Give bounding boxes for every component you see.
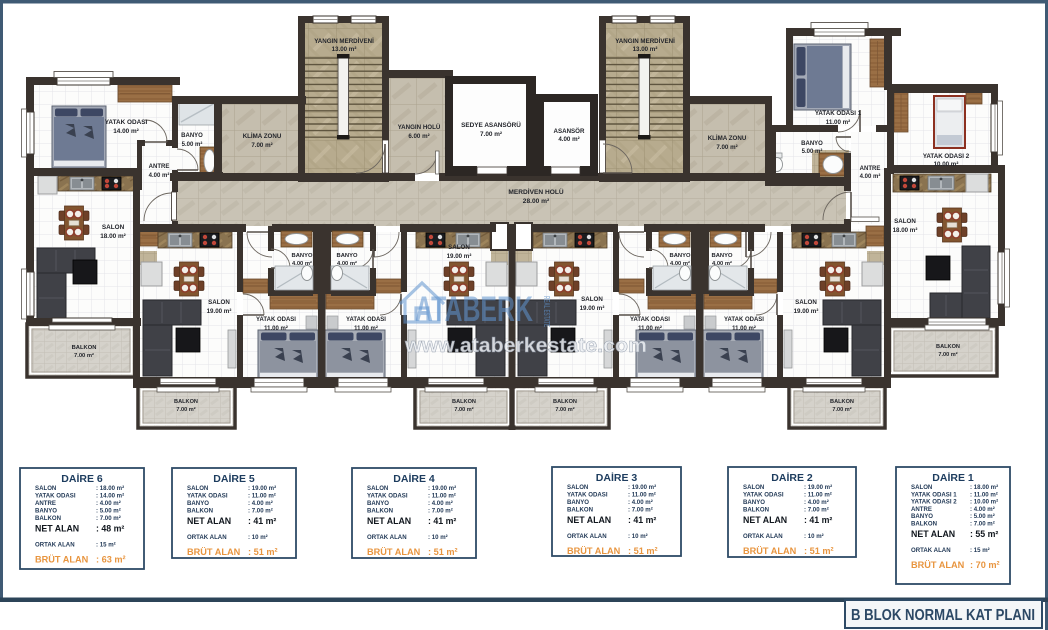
svg-text:: 5.00 m²: : 5.00 m²	[970, 513, 995, 520]
svg-text:BALKON: BALKON	[187, 508, 213, 515]
svg-text:: 7.00 m²: : 7.00 m²	[628, 507, 653, 514]
svg-text:BANYO: BANYO	[911, 513, 933, 520]
svg-text:SALON: SALON	[367, 485, 388, 492]
svg-text:7.00 m²: 7.00 m²	[454, 406, 473, 413]
svg-text:: 41 m²: : 41 m²	[804, 515, 832, 525]
svg-text:: 41 m²: : 41 m²	[248, 516, 276, 526]
svg-text:: 4.00 m²: : 4.00 m²	[804, 499, 829, 506]
svg-text:YATAK ODASI: YATAK ODASI	[567, 492, 608, 499]
svg-text:BANYO: BANYO	[367, 500, 389, 507]
svg-text:BALKON: BALKON	[452, 399, 476, 405]
svg-text:DAİRE 3: DAİRE 3	[596, 471, 638, 484]
svg-text:BANYO: BANYO	[743, 499, 765, 506]
svg-text:BALKON: BALKON	[72, 345, 97, 351]
svg-text:NET ALAN: NET ALAN	[743, 515, 787, 525]
svg-text:SALON: SALON	[567, 484, 588, 491]
svg-text:BRÜT ALAN: BRÜT ALAN	[367, 547, 421, 557]
svg-text:: 4.00 m²: : 4.00 m²	[96, 500, 121, 507]
svg-text:: 7.00 m²: : 7.00 m²	[970, 521, 995, 528]
svg-text:YATAK ODASI: YATAK ODASI	[724, 317, 764, 323]
svg-text:YATAK ODASI: YATAK ODASI	[367, 493, 408, 500]
svg-text:SALON: SALON	[208, 299, 230, 306]
svg-text:BALKON: BALKON	[35, 515, 61, 522]
svg-text:BALKON: BALKON	[553, 399, 577, 405]
svg-text:SALON: SALON	[35, 485, 56, 492]
svg-text:13.00 m²: 13.00 m²	[332, 46, 357, 53]
svg-text:ORTAK ALAN: ORTAK ALAN	[743, 533, 783, 540]
svg-text:BRÜT ALAN: BRÜT ALAN	[567, 546, 621, 556]
svg-text:SALON: SALON	[894, 218, 916, 225]
svg-text:11.00 m²: 11.00 m²	[638, 325, 662, 332]
svg-text:B BLOK NORMAL KAT PLANI: B BLOK NORMAL KAT PLANI	[851, 607, 1035, 624]
svg-text:YATAK ODASI 2: YATAK ODASI 2	[911, 499, 957, 506]
svg-text:: 19.00 m²: : 19.00 m²	[804, 484, 832, 491]
svg-text:BANYO: BANYO	[181, 133, 203, 139]
svg-text:YATAK ODASI: YATAK ODASI	[256, 317, 296, 323]
svg-text:: 4.00 m²: : 4.00 m²	[628, 499, 653, 506]
svg-text:BALKON: BALKON	[936, 344, 960, 350]
svg-text:: 11.00 m²: : 11.00 m²	[804, 492, 832, 499]
svg-text:: 63 m²: : 63 m²	[96, 555, 126, 565]
svg-text:BALKON: BALKON	[367, 508, 393, 515]
svg-text:BALKON: BALKON	[911, 521, 937, 528]
svg-text:18.00 m²: 18.00 m²	[893, 227, 918, 234]
svg-text:: 15 m²: : 15 m²	[96, 542, 116, 549]
svg-text:19.00 m²: 19.00 m²	[447, 253, 472, 260]
svg-text:: 4.00 m²: : 4.00 m²	[248, 500, 273, 507]
svg-text:: 51 m²: : 51 m²	[428, 547, 458, 557]
svg-text:: 14.00 m²: : 14.00 m²	[96, 493, 124, 500]
svg-text:: 11.00 m²: : 11.00 m²	[428, 493, 456, 500]
svg-text:13.00 m²: 13.00 m²	[633, 46, 658, 53]
svg-text:: 19.00 m²: : 19.00 m²	[248, 485, 276, 492]
svg-text:19.00 m²: 19.00 m²	[207, 308, 232, 315]
svg-text:BRÜT ALAN: BRÜT ALAN	[35, 555, 89, 565]
svg-text:ORTAK ALAN: ORTAK ALAN	[187, 534, 227, 541]
svg-text:KLİMA ZONU: KLİMA ZONU	[708, 135, 747, 142]
svg-text:: 7.00 m²: : 7.00 m²	[248, 508, 273, 515]
svg-text:NET ALAN: NET ALAN	[567, 515, 611, 525]
svg-text:: 48 m²: : 48 m²	[96, 524, 124, 534]
svg-text:: 7.00 m²: : 7.00 m²	[804, 507, 829, 514]
svg-text:SALON: SALON	[795, 299, 817, 306]
svg-text:: 51 m²: : 51 m²	[248, 547, 278, 557]
svg-text:BANYO: BANYO	[35, 508, 57, 515]
svg-text:BANYO: BANYO	[292, 253, 313, 259]
svg-text:10.00 m²: 10.00 m²	[934, 161, 959, 168]
svg-text:4.00 m²: 4.00 m²	[558, 136, 579, 143]
svg-text:YATAK ODASI: YATAK ODASI	[105, 119, 148, 126]
svg-text:YANGIN HOLÜ: YANGIN HOLÜ	[398, 124, 441, 131]
svg-text:YATAK ODASI: YATAK ODASI	[187, 493, 228, 500]
svg-text:11.00 m²: 11.00 m²	[732, 325, 756, 332]
svg-text:11.00 m²: 11.00 m²	[826, 119, 850, 126]
svg-text:BANYO: BANYO	[670, 253, 691, 259]
svg-text:: 10 m²: : 10 m²	[248, 534, 268, 541]
svg-text:NET ALAN: NET ALAN	[367, 516, 411, 526]
svg-text:ATABERK: ATABERK	[415, 290, 533, 329]
svg-text:DAİRE 1: DAİRE 1	[932, 471, 974, 484]
svg-text:: 18.00 m²: : 18.00 m²	[970, 484, 998, 491]
svg-text:4.00 m²: 4.00 m²	[149, 172, 170, 179]
svg-text:: 18.00 m²: : 18.00 m²	[96, 485, 124, 492]
svg-text:: 10 m²: : 10 m²	[628, 533, 648, 540]
svg-text:DAİRE 6: DAİRE 6	[61, 472, 103, 485]
svg-text:YATAK ODASI 1: YATAK ODASI 1	[911, 491, 957, 498]
svg-text:: 4.00 m²: : 4.00 m²	[428, 500, 453, 507]
svg-text:: 11.00 m²: : 11.00 m²	[970, 491, 998, 498]
svg-text:: 10 m²: : 10 m²	[428, 534, 448, 541]
svg-text:NET ALAN: NET ALAN	[911, 529, 955, 539]
svg-text:BALKON: BALKON	[174, 399, 198, 405]
svg-text:7.00 m²: 7.00 m²	[251, 142, 272, 149]
svg-text:ORTAK ALAN: ORTAK ALAN	[367, 534, 407, 541]
svg-text:: 51 m²: : 51 m²	[804, 546, 834, 556]
svg-text:SALON: SALON	[581, 296, 603, 303]
svg-text:ANTRE: ANTRE	[860, 166, 881, 172]
svg-text:7.00 m²: 7.00 m²	[832, 406, 851, 413]
svg-text:NET ALAN: NET ALAN	[187, 516, 231, 526]
svg-text:7.00 m²: 7.00 m²	[555, 406, 574, 413]
svg-text:MERDİVEN HOLÜ: MERDİVEN HOLÜ	[508, 187, 564, 196]
svg-text:SEDYE ASANSÖRÜ: SEDYE ASANSÖRÜ	[461, 120, 521, 129]
svg-text:SALON: SALON	[102, 224, 125, 231]
svg-text:DAİRE 4: DAİRE 4	[393, 472, 435, 485]
svg-text:: 19.00 m²: : 19.00 m²	[628, 484, 656, 491]
svg-text:YANGIN MERDİVENİ: YANGIN MERDİVENİ	[615, 38, 675, 45]
svg-text:5.00 m²: 5.00 m²	[182, 141, 203, 148]
svg-text:11.00 m²: 11.00 m²	[264, 325, 288, 332]
svg-text:KLİMA ZONU: KLİMA ZONU	[243, 133, 282, 140]
svg-text:BANYO: BANYO	[337, 253, 358, 259]
svg-text:ORTAK ALAN: ORTAK ALAN	[35, 542, 75, 549]
svg-text:4.00 m²: 4.00 m²	[292, 260, 312, 267]
svg-text:YATAK ODASI: YATAK ODASI	[743, 492, 784, 499]
svg-text:DAİRE 2: DAİRE 2	[771, 471, 813, 484]
svg-text:19.00 m²: 19.00 m²	[580, 305, 605, 312]
svg-text:BALKON: BALKON	[567, 507, 593, 514]
svg-text:YANGIN MERDİVENİ: YANGIN MERDİVENİ	[314, 38, 374, 45]
svg-text:19.00 m²: 19.00 m²	[794, 308, 819, 315]
svg-text:BANYO: BANYO	[567, 499, 589, 506]
svg-text:14.00 m²: 14.00 m²	[113, 128, 139, 135]
svg-text:YATAK ODASI 2: YATAK ODASI 2	[923, 153, 970, 160]
svg-text:REAL ESTATE: REAL ESTATE	[542, 296, 552, 327]
svg-text:ORTAK ALAN: ORTAK ALAN	[911, 547, 951, 554]
svg-text:18.00 m²: 18.00 m²	[100, 233, 126, 240]
svg-text:SALON: SALON	[743, 484, 764, 491]
svg-text:7.00 m²: 7.00 m²	[716, 144, 737, 151]
svg-text:: 70 m²: : 70 m²	[970, 560, 1000, 570]
svg-text:BANYO: BANYO	[187, 500, 209, 507]
svg-text:28.00 m²: 28.00 m²	[523, 198, 550, 205]
svg-text:: 41 m²: : 41 m²	[428, 516, 456, 526]
svg-text:7.00 m²: 7.00 m²	[480, 131, 502, 138]
svg-text:DAİRE 5: DAİRE 5	[213, 472, 255, 485]
svg-text:BRÜT ALAN: BRÜT ALAN	[187, 547, 241, 557]
svg-text:: 19.00 m²: : 19.00 m²	[428, 485, 456, 492]
svg-text:ORTAK ALAN: ORTAK ALAN	[567, 533, 607, 540]
svg-text:: 7.00 m²: : 7.00 m²	[428, 508, 453, 515]
svg-text:: 55 m²: : 55 m²	[970, 529, 998, 539]
svg-text:SALON: SALON	[448, 244, 470, 251]
svg-text:4.00 m²: 4.00 m²	[337, 260, 357, 267]
svg-text:7.00 m²: 7.00 m²	[176, 406, 195, 413]
svg-text:ANTRE: ANTRE	[35, 500, 56, 507]
svg-text:: 10.00 m²: : 10.00 m²	[970, 499, 998, 506]
svg-text:BANYO: BANYO	[712, 253, 733, 259]
svg-text:: 7.00 m²: : 7.00 m²	[96, 515, 121, 522]
svg-text:SALON: SALON	[911, 484, 932, 491]
svg-text:7.00 m²: 7.00 m²	[74, 352, 94, 359]
svg-text:ANTRE: ANTRE	[911, 506, 932, 513]
svg-text:: 10 m²: : 10 m²	[804, 533, 824, 540]
svg-text:ANTRE: ANTRE	[149, 164, 170, 170]
svg-text:BRÜT ALAN: BRÜT ALAN	[911, 560, 965, 570]
svg-text:: 11.00 m²: : 11.00 m²	[628, 492, 656, 499]
svg-text:4.00 m²: 4.00 m²	[860, 173, 881, 180]
svg-text:: 5.00 m²: : 5.00 m²	[96, 508, 121, 515]
svg-text:YATAK ODASI: YATAK ODASI	[346, 317, 386, 323]
svg-text:6.00 m²: 6.00 m²	[408, 133, 429, 140]
svg-text:YATAK ODASI: YATAK ODASI	[35, 493, 76, 500]
svg-text:4.00 m²: 4.00 m²	[670, 260, 690, 267]
svg-text:7.00 m²: 7.00 m²	[938, 351, 957, 358]
svg-text:BALKON: BALKON	[743, 507, 769, 514]
svg-text:4.00 m²: 4.00 m²	[712, 260, 732, 267]
svg-text:: 4.00 m²: : 4.00 m²	[970, 506, 995, 513]
svg-text:: 51 m²: : 51 m²	[628, 546, 658, 556]
svg-text:BALKON: BALKON	[830, 399, 854, 405]
svg-text:11.00 m²: 11.00 m²	[354, 325, 378, 332]
svg-text:BANYO: BANYO	[801, 141, 823, 147]
svg-text:: 11.00 m²: : 11.00 m²	[248, 493, 276, 500]
svg-text:: 41 m²: : 41 m²	[628, 515, 656, 525]
svg-text:YATAK ODASI: YATAK ODASI	[630, 317, 670, 323]
svg-text:ASANSÖR: ASANSÖR	[554, 128, 585, 135]
svg-text:YATAK ODASI 1: YATAK ODASI 1	[815, 110, 862, 117]
svg-text:: 15 m²: : 15 m²	[970, 547, 990, 554]
svg-text:BRÜT ALAN: BRÜT ALAN	[743, 546, 797, 556]
svg-text:5.00 m²: 5.00 m²	[802, 148, 823, 155]
svg-text:NET ALAN: NET ALAN	[35, 524, 79, 534]
svg-text:SALON: SALON	[187, 485, 208, 492]
svg-text:www.ataberkestate.com: www.ataberkestate.com	[404, 334, 647, 357]
